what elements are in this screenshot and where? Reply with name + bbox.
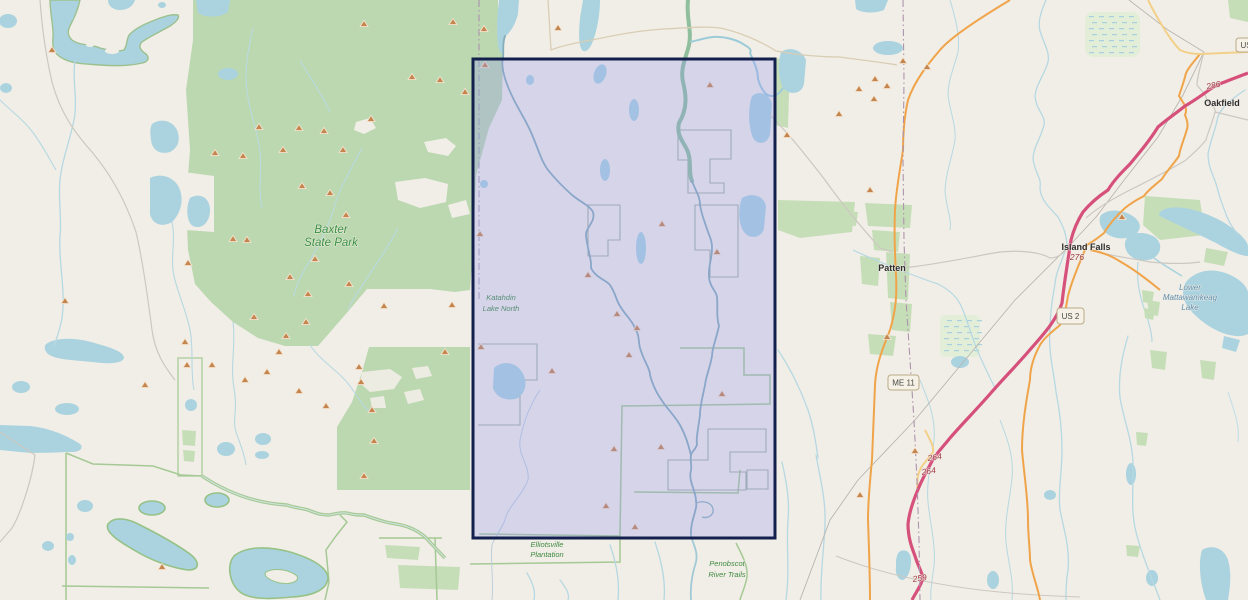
svg-text:Oakfield: Oakfield	[1204, 98, 1240, 108]
svg-text:Lower: Lower	[1179, 283, 1201, 292]
svg-text:Plantation: Plantation	[530, 550, 563, 559]
svg-text:264: 264	[926, 451, 943, 463]
svg-text:Penobscot: Penobscot	[709, 559, 745, 568]
svg-text:259: 259	[911, 572, 928, 584]
svg-text:Elliotsville: Elliotsville	[531, 540, 564, 549]
svg-text:US: US	[1240, 41, 1248, 50]
svg-text:Baxter: Baxter	[314, 224, 348, 236]
svg-text:Mattawamkeag: Mattawamkeag	[1163, 293, 1218, 302]
svg-text:Island Falls: Island Falls	[1061, 242, 1110, 252]
svg-text:River Trails: River Trails	[708, 570, 746, 579]
svg-text:Patten: Patten	[878, 263, 906, 273]
svg-text:State Park: State Park	[304, 237, 359, 249]
svg-text:264: 264	[920, 465, 937, 477]
svg-text:Lake: Lake	[1181, 303, 1199, 312]
svg-text:276: 276	[1069, 252, 1084, 262]
svg-text:ME 11: ME 11	[892, 379, 915, 388]
svg-text:US 2: US 2	[1062, 312, 1080, 321]
